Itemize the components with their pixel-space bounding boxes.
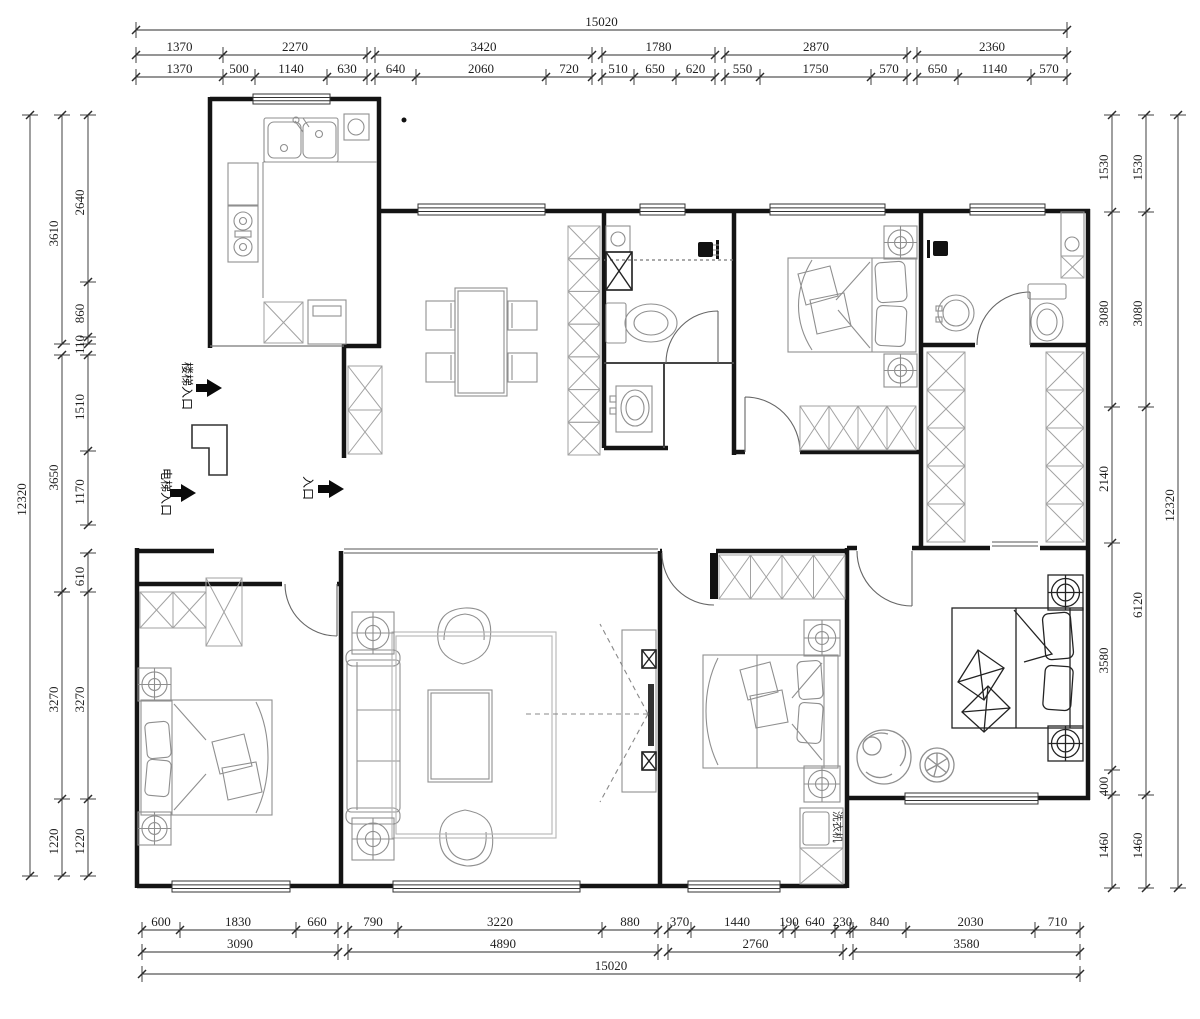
dim-label: 370 bbox=[670, 914, 690, 929]
dim-label: 2270 bbox=[282, 39, 308, 54]
dim-label: 3580 bbox=[954, 936, 980, 951]
dimension-chain: 3650 bbox=[46, 351, 70, 596]
bedroom-2 bbox=[788, 258, 916, 352]
dining-table bbox=[455, 288, 507, 396]
dim-label: 1460 bbox=[1130, 833, 1145, 859]
throw-blanket bbox=[810, 293, 851, 334]
shower-head bbox=[933, 241, 948, 256]
nightstand-lamps bbox=[138, 226, 1083, 860]
rug-outer bbox=[392, 632, 556, 838]
window bbox=[253, 94, 330, 104]
nightstand-lamp bbox=[884, 354, 917, 387]
dim-label: 1530 bbox=[1130, 155, 1145, 181]
dim-label: 3270 bbox=[72, 687, 87, 713]
counter-edge bbox=[263, 162, 377, 298]
dim-label: 1830 bbox=[225, 914, 251, 929]
floor-plan-page: 楼梯入口 电梯入口 入口 洗衣机 15020137022703420178028… bbox=[0, 0, 1200, 1014]
nightstand-lamp bbox=[138, 812, 171, 845]
bathroom-divider bbox=[604, 363, 734, 448]
bedroom2-door-arc bbox=[745, 397, 800, 452]
dim-label: 230 bbox=[833, 914, 853, 929]
interior-walls bbox=[137, 209, 1090, 886]
x-cabinet bbox=[800, 406, 916, 450]
washing-machine-drum bbox=[803, 812, 829, 845]
entrance-label: 入口 bbox=[301, 476, 315, 500]
stairs-entrance-arrow bbox=[196, 379, 222, 397]
dim-label: 3650 bbox=[46, 465, 61, 491]
dimension-chain: 510650620 bbox=[598, 61, 719, 85]
x-cabinet bbox=[140, 592, 206, 628]
entry-area: 楼梯入口 电梯入口 入口 bbox=[159, 362, 344, 516]
water-heater-dial bbox=[348, 119, 364, 135]
dim-label: 880 bbox=[620, 914, 640, 929]
bathroom1-door-arc bbox=[666, 311, 718, 363]
dimension-annotations: 1502013702270342017802870236013705001140… bbox=[14, 14, 1186, 982]
dim-label: 640 bbox=[805, 914, 825, 929]
dim-label: 650 bbox=[645, 61, 665, 76]
bathroom-1 bbox=[606, 226, 719, 432]
dark-cushion-x bbox=[962, 686, 1010, 732]
dim-label: 1370 bbox=[167, 39, 193, 54]
dimension-chain: 3610 bbox=[46, 111, 70, 348]
sink-drain-left bbox=[281, 145, 288, 152]
dim-label: 400 bbox=[1096, 777, 1111, 797]
cabinet-box bbox=[1061, 212, 1084, 256]
dim-label: 1440 bbox=[724, 914, 750, 929]
dim-label: 720 bbox=[559, 61, 579, 76]
dim-label: 550 bbox=[733, 61, 753, 76]
x-cabinet bbox=[1061, 256, 1084, 278]
dimension-chain: 5501750570 bbox=[721, 61, 911, 85]
dim-label: 790 bbox=[363, 914, 383, 929]
dim-label: 510 bbox=[608, 61, 628, 76]
wash-basin-inner bbox=[626, 396, 644, 420]
bedroom-4 bbox=[857, 608, 1083, 784]
dim-label: 1530 bbox=[1096, 155, 1111, 181]
elevator-entrance-label: 电梯入口 bbox=[159, 468, 173, 516]
dim-label: 630 bbox=[337, 61, 357, 76]
fridge-detail bbox=[313, 306, 341, 316]
dim-label: 3080 bbox=[1130, 301, 1145, 327]
dimension-chain: 8402030710 bbox=[849, 914, 1084, 938]
window bbox=[905, 793, 1038, 804]
dim-label: 620 bbox=[686, 61, 706, 76]
dim-label: 2060 bbox=[468, 61, 494, 76]
rug-inner bbox=[396, 636, 552, 834]
stairs-entrance-label: 楼梯入口 bbox=[180, 362, 195, 410]
dimension-chain: 13705001140630 bbox=[132, 61, 371, 85]
sofa-cushions bbox=[357, 662, 400, 810]
x-cabinet bbox=[800, 848, 843, 884]
nightstand-lamp bbox=[1048, 726, 1083, 761]
throw-blanket bbox=[798, 266, 838, 305]
entrance-arrow bbox=[318, 480, 344, 498]
blanket-folds bbox=[799, 260, 871, 350]
dimension-chain: 7903220880 bbox=[344, 914, 662, 938]
dim-label: 3420 bbox=[471, 39, 497, 54]
plants bbox=[857, 730, 954, 784]
blanket-folds bbox=[174, 702, 268, 813]
toilet-bowl-inner bbox=[634, 311, 668, 335]
window bbox=[418, 204, 545, 215]
window bbox=[172, 881, 290, 892]
living-room bbox=[346, 608, 656, 866]
dimension-chain: 15020 bbox=[138, 958, 1084, 982]
sink-faucet bbox=[295, 118, 309, 132]
floor-plan-canvas: 楼梯入口 电梯入口 入口 洗衣机 15020137022703420178028… bbox=[0, 0, 1200, 1014]
dim-label: 860 bbox=[72, 304, 87, 324]
vent-fan bbox=[611, 232, 625, 246]
x-cabinet bbox=[642, 752, 656, 770]
pillow bbox=[797, 702, 824, 744]
dim-label: 12320 bbox=[1162, 489, 1177, 522]
dim-label: 570 bbox=[879, 61, 899, 76]
dim-label: 1220 bbox=[46, 829, 61, 855]
dim-label: 15020 bbox=[595, 958, 628, 973]
dimension-chain: 2360 bbox=[913, 39, 1071, 63]
wash-basin bbox=[621, 390, 649, 426]
x-cabinet bbox=[927, 352, 965, 542]
burner-1-center bbox=[240, 218, 247, 225]
dim-label: 1460 bbox=[1096, 833, 1111, 859]
nightstand-lamp bbox=[804, 620, 840, 656]
dimension-chain: 6001830660 bbox=[138, 914, 342, 938]
plant-large bbox=[857, 730, 911, 784]
vent-box bbox=[606, 226, 630, 252]
dimension-chain: 3090 bbox=[138, 936, 342, 960]
dining-table-inner bbox=[458, 291, 504, 393]
window bbox=[970, 204, 1045, 215]
x-cabinet bbox=[642, 650, 656, 668]
dim-label: 1780 bbox=[646, 39, 672, 54]
dim-label: 3580 bbox=[1096, 648, 1111, 674]
blanket-fold bbox=[1014, 610, 1052, 662]
tv-sightlines bbox=[524, 624, 648, 802]
throw-blanket bbox=[750, 690, 788, 728]
dimension-chain: 15101170 bbox=[72, 351, 96, 529]
dimension-chain: 15020 bbox=[132, 14, 1071, 38]
pillow bbox=[144, 721, 171, 759]
dining-area bbox=[426, 288, 537, 396]
dim-label: 1370 bbox=[167, 61, 193, 76]
dimension-chain: 1530308061201460 bbox=[1130, 111, 1154, 892]
dim-label: 600 bbox=[151, 914, 171, 929]
exterior-walls bbox=[137, 97, 1090, 888]
pillow bbox=[875, 305, 907, 347]
nightstand-lamp bbox=[138, 668, 171, 701]
burner-2-center bbox=[240, 244, 247, 251]
dim-label: 6120 bbox=[1130, 592, 1145, 618]
dimension-chain: 12320 bbox=[14, 111, 38, 880]
coffee-table bbox=[428, 690, 492, 782]
burner-1 bbox=[234, 212, 252, 230]
dim-label: 640 bbox=[386, 61, 406, 76]
stove bbox=[228, 206, 258, 262]
window bbox=[688, 881, 780, 892]
dim-label: 840 bbox=[870, 914, 890, 929]
dim-label: 1750 bbox=[803, 61, 829, 76]
window bbox=[640, 204, 685, 215]
dimension-chain: 2760 bbox=[664, 936, 847, 960]
pillow bbox=[1042, 612, 1074, 660]
toilet-bowl bbox=[625, 304, 677, 342]
dim-label: 1140 bbox=[278, 61, 304, 76]
bedroom-3 bbox=[703, 655, 843, 848]
dim-label: 110 bbox=[72, 335, 87, 354]
toilet-bowl-inner bbox=[1037, 309, 1057, 335]
dim-label: 3270 bbox=[46, 687, 61, 713]
x-cabinet bbox=[606, 252, 632, 290]
cabinet-dial bbox=[1065, 237, 1079, 251]
dimension-chain: 32701220 bbox=[46, 588, 70, 880]
bathroom2-door-arc bbox=[977, 292, 1030, 345]
dimension-chain: 6501140570 bbox=[913, 61, 1071, 85]
dimension-chain: 3701440190640230 bbox=[664, 914, 854, 938]
wall-dot bbox=[402, 118, 407, 123]
dim-label: 4890 bbox=[490, 936, 516, 951]
dimension-chain: 15303080214035804001460 bbox=[1096, 111, 1120, 892]
x-cabinet bbox=[264, 302, 303, 343]
dim-label: 1220 bbox=[72, 829, 87, 855]
doors bbox=[285, 292, 1030, 636]
dim-label: 2760 bbox=[743, 936, 769, 951]
blanket-folds bbox=[706, 658, 822, 765]
dimension-chain: 61032701220 bbox=[72, 549, 96, 880]
dim-label: 3220 bbox=[487, 914, 513, 929]
pillow bbox=[144, 759, 171, 797]
x-cabinet bbox=[348, 366, 382, 454]
dim-label: 3610 bbox=[46, 221, 61, 247]
dim-label: 3080 bbox=[1096, 301, 1111, 327]
nightstand-lamp bbox=[1048, 575, 1083, 610]
bedroom3-door-arc bbox=[662, 553, 714, 605]
dim-label: 2870 bbox=[803, 39, 829, 54]
dim-label: 500 bbox=[229, 61, 249, 76]
sink-drain-right bbox=[316, 131, 323, 138]
rug bbox=[392, 632, 556, 838]
pillow bbox=[1042, 665, 1073, 711]
stair-core-outline bbox=[192, 425, 227, 475]
closet-threshold bbox=[992, 542, 1038, 546]
dining-chair-backs bbox=[451, 303, 512, 380]
dimension-chain: 12320 bbox=[1162, 111, 1186, 892]
dim-label: 1140 bbox=[982, 61, 1008, 76]
dim-label: 12320 bbox=[14, 483, 29, 516]
dim-label: 15020 bbox=[585, 14, 618, 29]
dimension-chain: 2640860110 bbox=[72, 111, 96, 354]
stove-panel bbox=[235, 231, 251, 237]
dimension-chain: 2870 bbox=[721, 39, 911, 63]
bedroom3-door-leaf bbox=[710, 553, 718, 599]
dim-label: 1170 bbox=[72, 479, 87, 505]
dim-label: 3090 bbox=[227, 936, 253, 951]
dim-label: 650 bbox=[928, 61, 948, 76]
shower-head bbox=[698, 242, 713, 257]
toilet-tank bbox=[606, 303, 626, 343]
bed bbox=[703, 655, 838, 768]
shower-bracket bbox=[927, 240, 930, 258]
dimension-chain: 3580 bbox=[849, 936, 1084, 960]
bedroom-1 bbox=[141, 700, 272, 815]
dim-label: 710 bbox=[1048, 914, 1068, 929]
basin-tap bbox=[610, 408, 616, 414]
burner-2 bbox=[234, 238, 252, 256]
dim-label: 2030 bbox=[958, 914, 984, 929]
washing-machine-label: 洗衣机 bbox=[831, 811, 844, 843]
dim-label: 660 bbox=[307, 914, 327, 929]
nightstand-lamp bbox=[804, 766, 840, 802]
dim-label: 1510 bbox=[72, 394, 87, 420]
x-cabinet bbox=[719, 555, 845, 599]
basin-tap bbox=[610, 396, 616, 402]
bedroom4-door-arc bbox=[857, 551, 912, 606]
nightstand-lamp bbox=[884, 226, 917, 259]
dimension-chain: 6402060720 bbox=[371, 61, 596, 85]
coffee-table-inner bbox=[431, 693, 489, 779]
dim-label: 190 bbox=[779, 914, 799, 929]
bathroom-2 bbox=[927, 212, 1084, 341]
toilet-tank bbox=[1028, 284, 1066, 299]
throw-blanket bbox=[222, 762, 262, 800]
x-cabinet bbox=[568, 226, 600, 455]
wash-basin-inner bbox=[943, 300, 969, 326]
x-cabinet bbox=[1046, 352, 1084, 542]
dim-label: 570 bbox=[1039, 61, 1059, 76]
dimension-chain: 1780 bbox=[598, 39, 719, 63]
pillow bbox=[875, 261, 908, 303]
throw-blanket bbox=[212, 734, 252, 774]
sink-basin-left bbox=[268, 122, 301, 158]
dimension-chain: 4890 bbox=[344, 936, 662, 960]
nightstand-lamp bbox=[352, 612, 394, 654]
window bbox=[393, 881, 580, 892]
tv-screen bbox=[648, 684, 654, 746]
dim-label: 610 bbox=[72, 567, 87, 587]
dim-label: 2360 bbox=[979, 39, 1005, 54]
dim-label: 2140 bbox=[1096, 466, 1111, 492]
sink-basin-right bbox=[303, 122, 336, 158]
walls bbox=[137, 97, 1090, 888]
bedroom1-door-arc bbox=[285, 584, 337, 636]
window bbox=[770, 204, 885, 215]
dimension-chain: 3420 bbox=[371, 39, 596, 63]
fridge bbox=[308, 300, 346, 344]
x-cabinet bbox=[206, 578, 242, 646]
cutting-board bbox=[228, 163, 258, 205]
living-opening-line bbox=[344, 549, 658, 553]
dim-label: 2640 bbox=[72, 190, 87, 216]
dimension-chain: 13702270 bbox=[132, 39, 371, 63]
